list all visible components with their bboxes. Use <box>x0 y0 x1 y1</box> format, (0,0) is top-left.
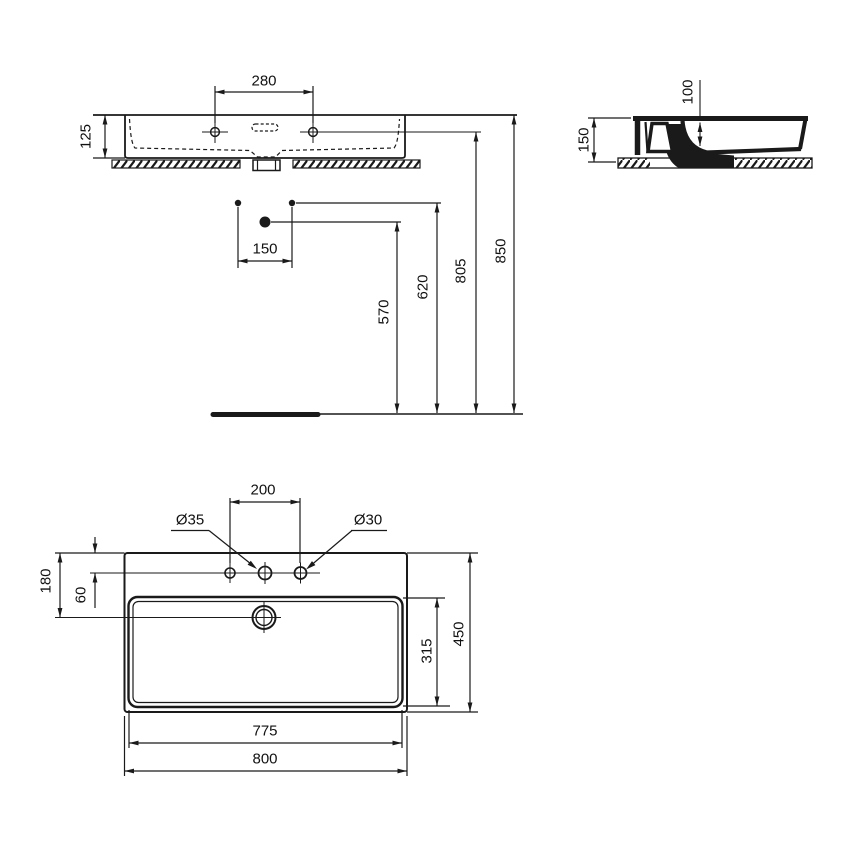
overflow-slot-icon <box>252 124 278 131</box>
dim-label: 800 <box>252 751 277 768</box>
arrowhead <box>698 123 703 133</box>
arrowhead <box>395 222 400 232</box>
dim-label: 125 <box>78 124 95 149</box>
dim-label: 315 <box>419 638 436 663</box>
hatch-strip-left <box>112 160 240 168</box>
arrowhead <box>103 115 108 125</box>
arrowhead <box>592 118 597 128</box>
arrowhead <box>393 741 403 746</box>
dim-570-group: 570 <box>376 222 400 413</box>
arrowhead <box>58 553 63 563</box>
dim-label: 150 <box>252 241 277 258</box>
arrowhead <box>283 259 293 264</box>
arrowhead <box>474 404 479 414</box>
arrowhead <box>468 553 473 563</box>
dia-label: Ø35 <box>176 512 204 529</box>
bowl-hidden-contour <box>130 119 400 157</box>
arrowhead <box>125 769 135 774</box>
arrowhead <box>395 404 400 414</box>
dim-label: 850 <box>493 238 510 263</box>
dim-200-group: 200 <box>230 482 300 564</box>
arrowhead <box>291 500 301 505</box>
arrowhead <box>215 90 225 95</box>
dim-125-group: 125 <box>78 115 126 158</box>
arrowhead <box>512 404 517 414</box>
arrowhead <box>698 137 703 147</box>
dia-label: Ø30 <box>354 512 382 529</box>
arrowhead <box>238 259 248 264</box>
callout-dia35-group: Ø35 <box>171 512 257 570</box>
dim-620-group: 620 <box>415 203 440 413</box>
hatch-strip-right <box>735 158 812 168</box>
front-wall-section <box>800 119 806 149</box>
dim-label: 60 <box>73 587 90 604</box>
dim-label: 570 <box>376 299 393 324</box>
bowl-plan-inner-line <box>133 602 398 703</box>
dim-805-group: 805 <box>453 132 479 413</box>
dim-label: 620 <box>415 274 432 299</box>
arrowhead <box>230 500 240 505</box>
plan-view: 200 Ø35 Ø30 60 180 <box>38 482 479 777</box>
front-elevation-view: 280 125 150 570 <box>78 73 524 415</box>
basin-outline <box>125 115 405 158</box>
bowl-plan-outline <box>129 597 403 707</box>
dim-label: 280 <box>251 73 276 90</box>
dim-315-group: 315 <box>403 598 450 706</box>
dim-775-group: 775 <box>129 710 402 748</box>
arrowhead <box>435 404 440 414</box>
arrowhead <box>304 90 314 95</box>
supply-point-dot <box>289 200 295 206</box>
arrowhead <box>58 608 63 618</box>
arrowhead <box>129 741 139 746</box>
dim-150-group: 150 <box>238 207 292 268</box>
arrowhead <box>93 573 98 583</box>
dim-label: 775 <box>252 723 277 740</box>
arrowhead <box>512 115 517 125</box>
dim-label: 100 <box>680 79 697 104</box>
fixing-hole-section <box>648 124 673 152</box>
technical-drawing-page: 280 125 150 570 <box>0 0 850 850</box>
hatch-strip-left <box>618 158 650 168</box>
faucet-hole-right-icon <box>300 121 481 143</box>
arrowhead <box>435 203 440 213</box>
dim-label: 450 <box>451 621 468 646</box>
arrowhead <box>103 149 108 159</box>
dim-450-group: 450 <box>407 553 478 712</box>
dim-label: 200 <box>250 482 275 499</box>
bowl-bottom-section <box>707 149 801 153</box>
dim-label: 150 <box>576 127 593 152</box>
dim-150-side-group: 150 <box>576 118 632 162</box>
drawing-canvas: 280 125 150 570 <box>0 0 850 850</box>
leader-line <box>312 531 352 565</box>
supply-point-dot <box>235 200 241 206</box>
back-wall-inner-line <box>646 122 648 152</box>
drain-fitting-icon <box>253 160 280 171</box>
arrowhead <box>474 132 479 142</box>
arrowhead <box>398 769 408 774</box>
drain-symbol <box>253 602 276 633</box>
dim-label: 805 <box>453 258 470 283</box>
dim-180-group: 180 <box>38 553 63 618</box>
arrowhead <box>468 703 473 713</box>
arrowhead <box>435 697 440 707</box>
faucet-hole-left-icon <box>202 121 228 143</box>
hatch-strip-right <box>293 160 420 168</box>
callout-dia30-group: Ø30 <box>306 512 387 570</box>
waste-point-dot <box>260 217 271 228</box>
arrowhead <box>435 598 440 608</box>
arrowhead <box>93 544 98 554</box>
side-section-view: 150 100 <box>576 79 813 168</box>
arrowhead <box>592 153 597 163</box>
dim-850-group: 850 <box>493 115 517 413</box>
dim-label: 180 <box>38 568 55 593</box>
basin-plan-outline <box>125 553 408 712</box>
